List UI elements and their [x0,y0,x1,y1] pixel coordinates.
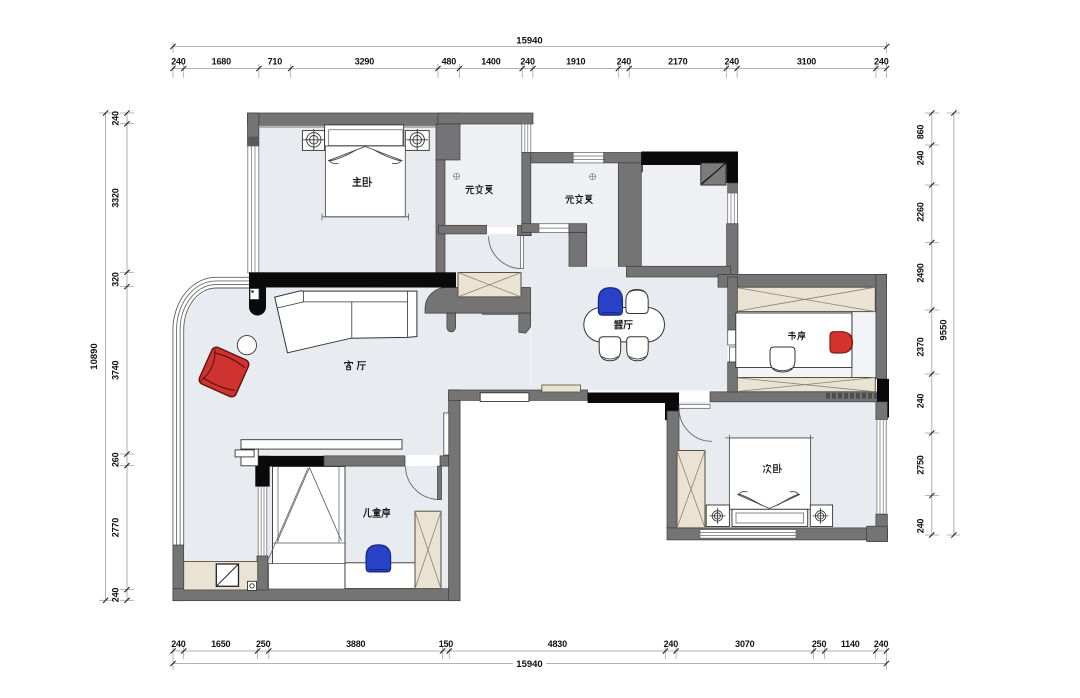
svg-text:240: 240 [874,57,889,67]
svg-text:3740: 3740 [111,361,121,380]
svg-text:240: 240 [916,519,926,534]
svg-text:15940: 15940 [516,36,542,47]
svg-text:240: 240 [520,57,535,67]
svg-text:3880: 3880 [346,639,365,649]
svg-text:15940: 15940 [516,659,542,670]
svg-text:240: 240 [916,394,926,409]
svg-text:710: 710 [268,57,283,67]
svg-text:250: 250 [256,639,271,649]
svg-text:1650: 1650 [211,639,230,649]
svg-text:2370: 2370 [916,337,926,356]
svg-text:240: 240 [724,57,739,67]
svg-text:2260: 2260 [916,202,926,221]
svg-text:240: 240 [874,639,889,649]
svg-text:2490: 2490 [916,263,926,282]
svg-text:860: 860 [916,125,926,140]
svg-text:2170: 2170 [668,57,687,67]
svg-text:2770: 2770 [111,518,121,537]
svg-text:260: 260 [111,452,121,467]
svg-text:3100: 3100 [797,57,816,67]
svg-text:3070: 3070 [735,639,754,649]
svg-text:3320: 3320 [111,188,121,207]
svg-text:3290: 3290 [355,57,374,67]
svg-text:1140: 1140 [841,639,860,649]
svg-text:320: 320 [111,272,121,287]
svg-text:2750: 2750 [916,455,926,474]
svg-text:240: 240 [617,57,632,67]
svg-text:240: 240 [171,639,186,649]
svg-text:9550: 9550 [939,319,950,340]
svg-text:1400: 1400 [481,57,500,67]
svg-text:240: 240 [664,639,679,649]
svg-text:480: 480 [442,57,457,67]
svg-text:4830: 4830 [548,639,567,649]
svg-text:10890: 10890 [89,343,100,369]
svg-text:150: 150 [439,639,454,649]
svg-text:1910: 1910 [566,57,585,67]
svg-text:1680: 1680 [212,57,231,67]
svg-text:250: 250 [812,639,827,649]
svg-text:240: 240 [171,57,186,67]
svg-text:240: 240 [916,151,926,166]
